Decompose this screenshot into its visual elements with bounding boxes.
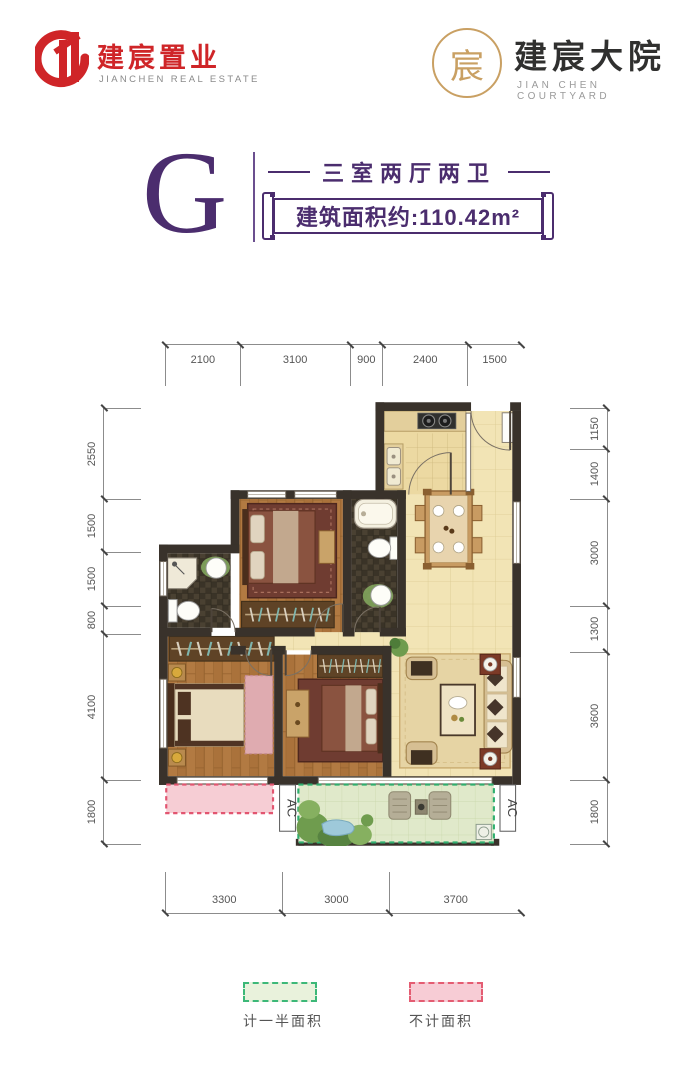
unit-letter: G xyxy=(142,134,227,252)
toilet1-tank xyxy=(168,600,177,622)
developer-name-en: JIANCHEN REAL ESTATE xyxy=(99,74,260,85)
dim-segment: 1500 xyxy=(104,552,141,605)
project-name-cn: 建宸大院 xyxy=(514,30,666,78)
dim-segment: 3600 xyxy=(570,652,607,780)
dim-tick xyxy=(518,909,525,916)
jianchen-logo-icon xyxy=(35,30,89,94)
ac-platform-right: AC xyxy=(500,785,520,831)
dim-rail-left: 25501500150080041001800 xyxy=(103,408,141,845)
dining-table xyxy=(415,489,482,570)
coffee-table-icon xyxy=(441,685,475,736)
project-name-en: JIAN CHEN COURTYARD xyxy=(517,80,690,102)
living-room xyxy=(390,638,512,769)
developer-logo: 建宸置业 JIANCHEN REAL ESTATE xyxy=(35,28,295,100)
dim-segment: 3300 xyxy=(165,872,282,913)
dim-label: 1500 xyxy=(86,504,98,548)
dim-segment: 900 xyxy=(350,345,383,386)
toilet2-icon xyxy=(368,539,390,558)
dim-segment: 1500 xyxy=(467,345,521,386)
pond-icon xyxy=(322,820,354,836)
banner-roller-right xyxy=(542,192,554,240)
toilet2-tank xyxy=(390,537,398,559)
dim-label: 1800 xyxy=(86,790,98,834)
dim-label: 900 xyxy=(357,354,375,386)
dim-label: 1150 xyxy=(589,407,601,451)
kitchen-tile-grid xyxy=(406,433,466,490)
dim-label: 3000 xyxy=(589,531,601,575)
dim-label: 1800 xyxy=(589,790,601,834)
dash-left xyxy=(268,171,310,174)
ac-platform-left: AC xyxy=(280,785,300,831)
area-text: 建筑面积约:110.42m² xyxy=(296,200,520,232)
floorplan-flyer: { "header": { "left_logo": { "cn": "建宸置业… xyxy=(0,0,700,1074)
legend: 计一半面积不计面积 xyxy=(243,982,483,1031)
legend-label: 不计面积 xyxy=(409,1011,473,1031)
floor-plan: AC AC xyxy=(159,402,521,846)
legend-label: 计一半面积 xyxy=(243,1011,323,1031)
dim-rail-bottom: 330030003700 xyxy=(165,872,521,914)
unit-layout: 三室两厅两卫 xyxy=(268,156,550,188)
dim-label: 3300 xyxy=(212,894,236,906)
kitchen-glazing xyxy=(466,413,471,491)
kitchen-counter xyxy=(384,411,466,431)
ac-label-right: AC xyxy=(505,799,520,817)
dim-segment: 2100 xyxy=(165,345,240,386)
dim-label: 3700 xyxy=(443,894,467,906)
dim-label: 3100 xyxy=(283,354,307,386)
dim-segment: 1400 xyxy=(570,449,607,499)
dim-label: 3000 xyxy=(324,894,348,906)
basin2-icon xyxy=(371,585,391,605)
bench-icon xyxy=(319,531,335,564)
legend-swatch xyxy=(409,982,483,1002)
dim-segment: 1150 xyxy=(570,408,607,449)
courtyard-seal-icon: 宸 xyxy=(432,28,502,98)
dim-label: 1300 xyxy=(589,607,601,651)
dim-segment: 3000 xyxy=(282,872,389,913)
project-logo: 宸 建宸大院 JIAN CHEN COURTYARD xyxy=(430,24,690,104)
dim-segment: 1800 xyxy=(104,780,141,844)
balcony xyxy=(297,785,494,846)
legend-item-0: 计一半面积 xyxy=(243,982,323,1031)
dim-segment: 2400 xyxy=(382,345,467,386)
dim-segment: 4100 xyxy=(104,634,141,780)
dim-segment: 1800 xyxy=(570,780,607,844)
flower-bed xyxy=(166,785,273,814)
title-divider xyxy=(253,152,255,242)
dim-label: 1400 xyxy=(589,452,601,496)
dim-rail-top: 2100310090024001500 xyxy=(165,344,521,386)
dim-label: 3600 xyxy=(589,694,601,738)
dim-label: 2400 xyxy=(413,354,437,386)
dim-label: 2550 xyxy=(86,432,98,476)
bedroom2 xyxy=(242,504,337,628)
dresser-icon xyxy=(286,690,308,737)
area-banner: 建筑面积约:110.42m² xyxy=(262,192,554,240)
dim-label: 800 xyxy=(86,598,98,642)
dim-segment: 1500 xyxy=(104,499,141,552)
legend-item-1: 不计面积 xyxy=(409,982,483,1031)
dim-rail-right: 115014003000130036001800 xyxy=(570,408,608,845)
dim-segment: 800 xyxy=(104,606,141,634)
legend-swatch xyxy=(243,982,317,1002)
dim-segment: 2550 xyxy=(104,408,141,499)
unit-layout-text: 三室两厅两卫 xyxy=(322,156,496,188)
dim-label: 4100 xyxy=(86,685,98,729)
basin1-icon xyxy=(206,558,226,578)
master-bedroom xyxy=(168,636,274,766)
toilet1-icon xyxy=(177,601,199,620)
dim-segment: 1300 xyxy=(570,606,607,652)
developer-name-cn: 建宸置业 xyxy=(97,36,221,75)
dim-segment: 3100 xyxy=(240,345,350,386)
dash-right xyxy=(508,171,550,174)
kitchen-sink xyxy=(384,444,403,489)
dim-segment: 3000 xyxy=(570,499,607,606)
ac-label-left: AC xyxy=(285,799,300,817)
dim-label: 1500 xyxy=(482,354,506,386)
dim-label: 1500 xyxy=(86,557,98,601)
dim-label: 2100 xyxy=(191,354,215,386)
dim-segment: 3700 xyxy=(389,872,521,913)
